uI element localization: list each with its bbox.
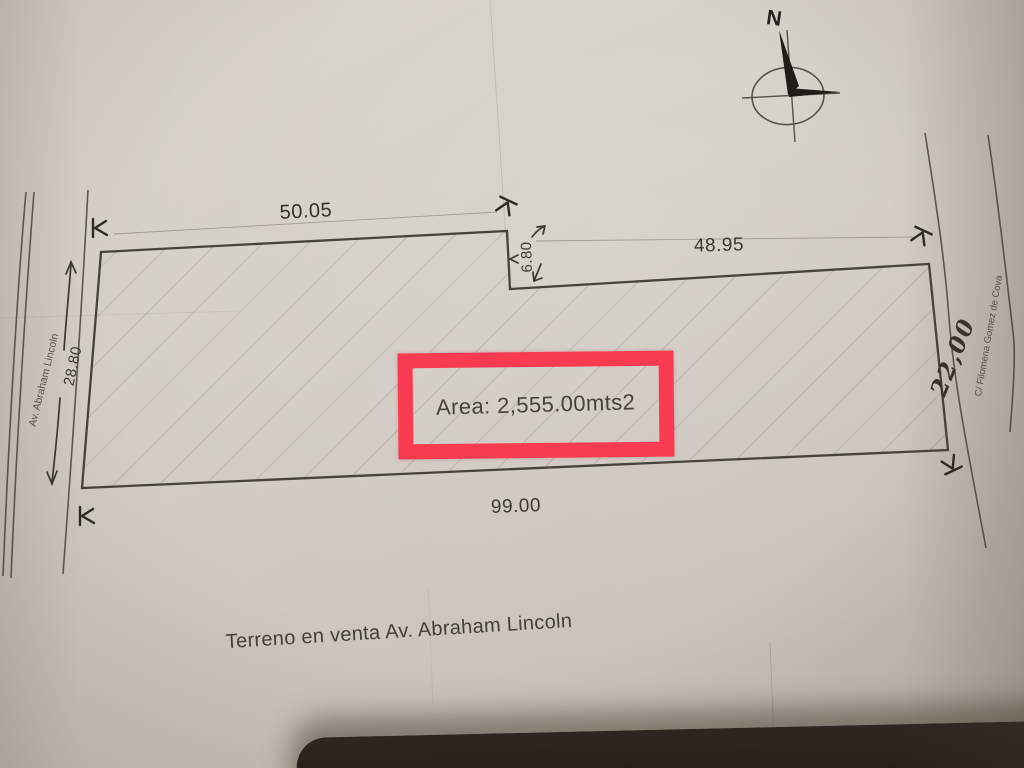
dimension-lines: [114, 212, 914, 241]
dimension-top-right-label: 48.95: [694, 234, 745, 257]
area-highlight-box: Area: 2,555.00mts2: [397, 351, 674, 460]
dimension-step-label: 6.80: [518, 241, 536, 273]
compass-rose-icon: [742, 30, 840, 142]
dimension-top-left-label: 50.05: [279, 199, 333, 225]
survey-photo: 50.05 48.95 6.80 28.80 22,00 99.00 Av. A…: [0, 0, 1024, 768]
area-label: Area: 2,555.00mts2: [436, 389, 636, 421]
dimension-bottom-label: 99.00: [491, 495, 542, 519]
